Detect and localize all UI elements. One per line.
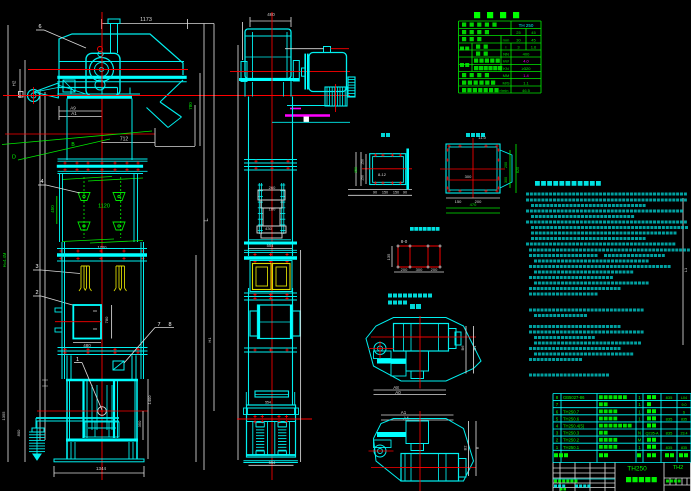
- svg-text:835: 835: [681, 446, 687, 450]
- svg-text:1120: 1120: [98, 204, 110, 210]
- svg-text:TH250.3: TH250.3: [563, 431, 580, 436]
- svg-text:554: 554: [265, 401, 271, 405]
- svg-text:554: 554: [269, 460, 276, 465]
- svg-text:TH 250: TH 250: [519, 23, 534, 28]
- svg-text:8-12: 8-12: [378, 172, 387, 177]
- svg-text:300: 300: [416, 267, 423, 272]
- svg-text:9.0: 9.0: [682, 403, 687, 407]
- svg-text:A0: A0: [395, 390, 401, 395]
- svg-text:150: 150: [361, 159, 365, 165]
- svg-text:4: 4: [40, 179, 43, 185]
- svg-text:800: 800: [16, 429, 21, 436]
- svg-text:150: 150: [455, 199, 462, 204]
- svg-text:430: 430: [265, 226, 272, 231]
- svg-text:150: 150: [393, 191, 399, 195]
- svg-text:8-0: 8-0: [401, 239, 408, 244]
- svg-text:470: 470: [470, 202, 477, 207]
- svg-text:1.4: 1.4: [523, 73, 529, 78]
- svg-text:30: 30: [516, 38, 521, 43]
- svg-text:90: 90: [373, 191, 377, 195]
- svg-text:Q235-A: Q235-A: [645, 432, 659, 436]
- svg-text:TH250.7: TH250.7: [563, 409, 580, 414]
- svg-text:90: 90: [403, 191, 407, 195]
- svg-text:A9: A9: [70, 106, 76, 111]
- svg-text:350: 350: [354, 167, 358, 173]
- svg-text:135: 135: [386, 253, 391, 260]
- svg-text:l: l: [506, 45, 507, 50]
- svg-text:mm: mm: [503, 38, 510, 43]
- svg-text:23.4: 23.4: [681, 432, 688, 436]
- svg-text:3: 3: [35, 264, 38, 270]
- svg-text:200: 200: [401, 267, 408, 272]
- svg-text:H1: H1: [207, 337, 212, 343]
- svg-text:TH250.2: TH250.2: [563, 438, 580, 443]
- svg-text:r/min: r/min: [500, 88, 509, 93]
- svg-text:B2: B2: [463, 445, 468, 451]
- svg-text:2: 2: [35, 290, 38, 296]
- svg-text:150: 150: [361, 175, 365, 181]
- svg-text:TH250.4(5): TH250.4(5): [563, 424, 585, 429]
- svg-text:11-0: 11-0: [478, 135, 486, 140]
- svg-text:1344: 1344: [96, 466, 107, 471]
- svg-text:L04: L04: [681, 396, 687, 400]
- svg-text:780: 780: [104, 316, 109, 323]
- svg-text:1173: 1173: [140, 17, 152, 23]
- svg-text:NN: NN: [503, 52, 509, 57]
- svg-text:MM: MM: [503, 73, 510, 78]
- svg-text:1400: 1400: [147, 395, 152, 405]
- svg-text:450: 450: [50, 205, 55, 213]
- svg-text:620: 620: [516, 167, 520, 173]
- svg-text:200: 200: [504, 162, 508, 168]
- svg-text:200: 200: [431, 267, 438, 272]
- svg-text:B6: B6: [460, 345, 465, 351]
- svg-text:25: 25: [516, 30, 521, 35]
- svg-text:B: B: [475, 446, 480, 449]
- svg-text:6: 6: [38, 24, 41, 30]
- svg-text:1355: 1355: [1, 411, 6, 421]
- svg-text:835: 835: [666, 416, 673, 421]
- svg-text:260: 260: [269, 185, 276, 190]
- svg-text:180: 180: [269, 207, 276, 212]
- svg-text:1.6: 1.6: [531, 45, 537, 50]
- svg-text:TH2: TH2: [673, 465, 683, 471]
- svg-text:TH250: TH250: [627, 466, 647, 473]
- svg-text:835: 835: [666, 395, 673, 400]
- svg-text:A1: A1: [71, 111, 77, 116]
- svg-text:45: 45: [531, 38, 536, 43]
- svg-text:400: 400: [523, 52, 530, 57]
- svg-text:KN: KN: [503, 66, 509, 71]
- svg-text:150: 150: [382, 191, 388, 195]
- svg-text:1.1: 1.1: [523, 81, 529, 86]
- svg-text:GB5027-86: GB5027-86: [563, 395, 585, 400]
- svg-text:554: 554: [267, 243, 274, 248]
- svg-text:300: 300: [504, 177, 508, 183]
- svg-text:350: 350: [137, 420, 142, 427]
- svg-text:TH250.6: TH250.6: [563, 416, 580, 421]
- svg-text:45: 45: [531, 30, 536, 35]
- svg-text:835: 835: [666, 431, 673, 436]
- svg-text:460: 460: [267, 12, 275, 17]
- svg-text:H=4.4M: H=4.4M: [2, 252, 7, 267]
- svg-text:4.0: 4.0: [523, 59, 529, 64]
- svg-text:M/S: M/S: [502, 81, 509, 86]
- svg-text:M: M: [638, 438, 642, 443]
- svg-text:780: 780: [188, 102, 193, 110]
- svg-text:46.5: 46.5: [522, 88, 531, 93]
- svg-text:835: 835: [681, 417, 687, 421]
- svg-text:TH250.1: TH250.1: [563, 445, 580, 450]
- svg-text:712: 712: [120, 137, 129, 143]
- svg-text:300: 300: [465, 174, 472, 179]
- svg-text:H2: H2: [12, 80, 17, 86]
- svg-text:kW: kW: [503, 59, 509, 64]
- svg-text:≥320: ≥320: [522, 66, 532, 71]
- svg-text:L1: L1: [683, 267, 688, 272]
- svg-text:B1: B1: [472, 345, 477, 351]
- svg-text:N: N: [638, 431, 641, 436]
- svg-text:A1: A1: [401, 410, 407, 415]
- svg-text:835: 835: [666, 445, 673, 450]
- svg-text:D: D: [12, 155, 16, 161]
